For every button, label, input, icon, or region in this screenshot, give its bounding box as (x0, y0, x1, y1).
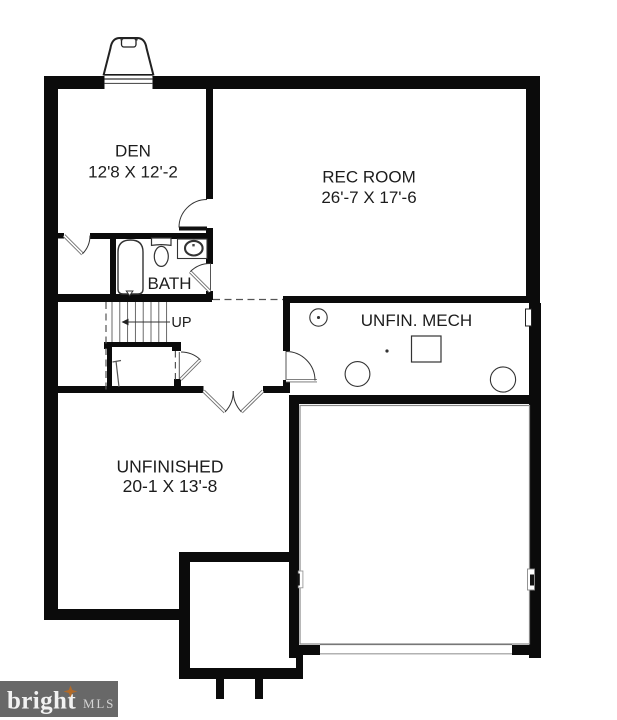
svg-text:UNFIN. MECH: UNFIN. MECH (361, 311, 472, 330)
svg-text:MLS: MLS (83, 696, 115, 711)
svg-text:UNFINISHED: UNFINISHED (117, 457, 224, 477)
svg-text:DEN: DEN (115, 142, 151, 161)
svg-text:12'8 X 12'-2: 12'8 X 12'-2 (88, 163, 178, 182)
svg-text:26'-7 X 17'-6: 26'-7 X 17'-6 (321, 188, 416, 207)
svg-text:20-1 X 13'-8: 20-1 X 13'-8 (123, 476, 218, 496)
svg-text:REC ROOM: REC ROOM (322, 168, 416, 187)
svg-text:UP: UP (171, 315, 191, 331)
svg-text:BATH: BATH (147, 274, 191, 293)
